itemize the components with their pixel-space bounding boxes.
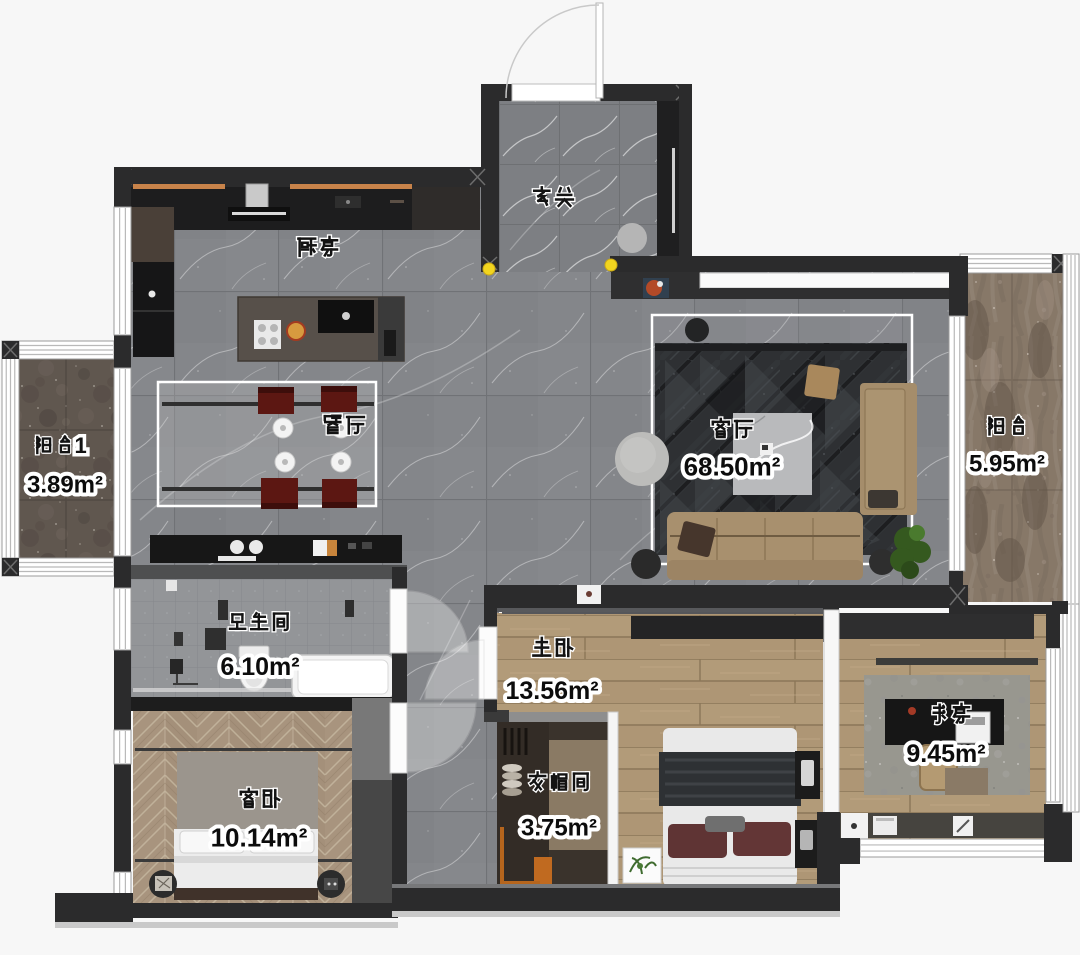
svg-text:5.95m²: 5.95m² [969,451,1045,478]
svg-text:3.75m²: 3.75m² [521,815,597,842]
svg-text:13.56m²: 13.56m² [505,677,598,705]
svg-text:6.10m²: 6.10m² [220,653,299,681]
svg-text:9.45m²: 9.45m² [906,740,985,768]
svg-text:10.14m²: 10.14m² [211,822,308,852]
svg-text:68.50m²: 68.50m² [684,451,781,481]
svg-text:1: 1 [75,433,87,458]
svg-text:3.89m²: 3.89m² [27,472,103,499]
